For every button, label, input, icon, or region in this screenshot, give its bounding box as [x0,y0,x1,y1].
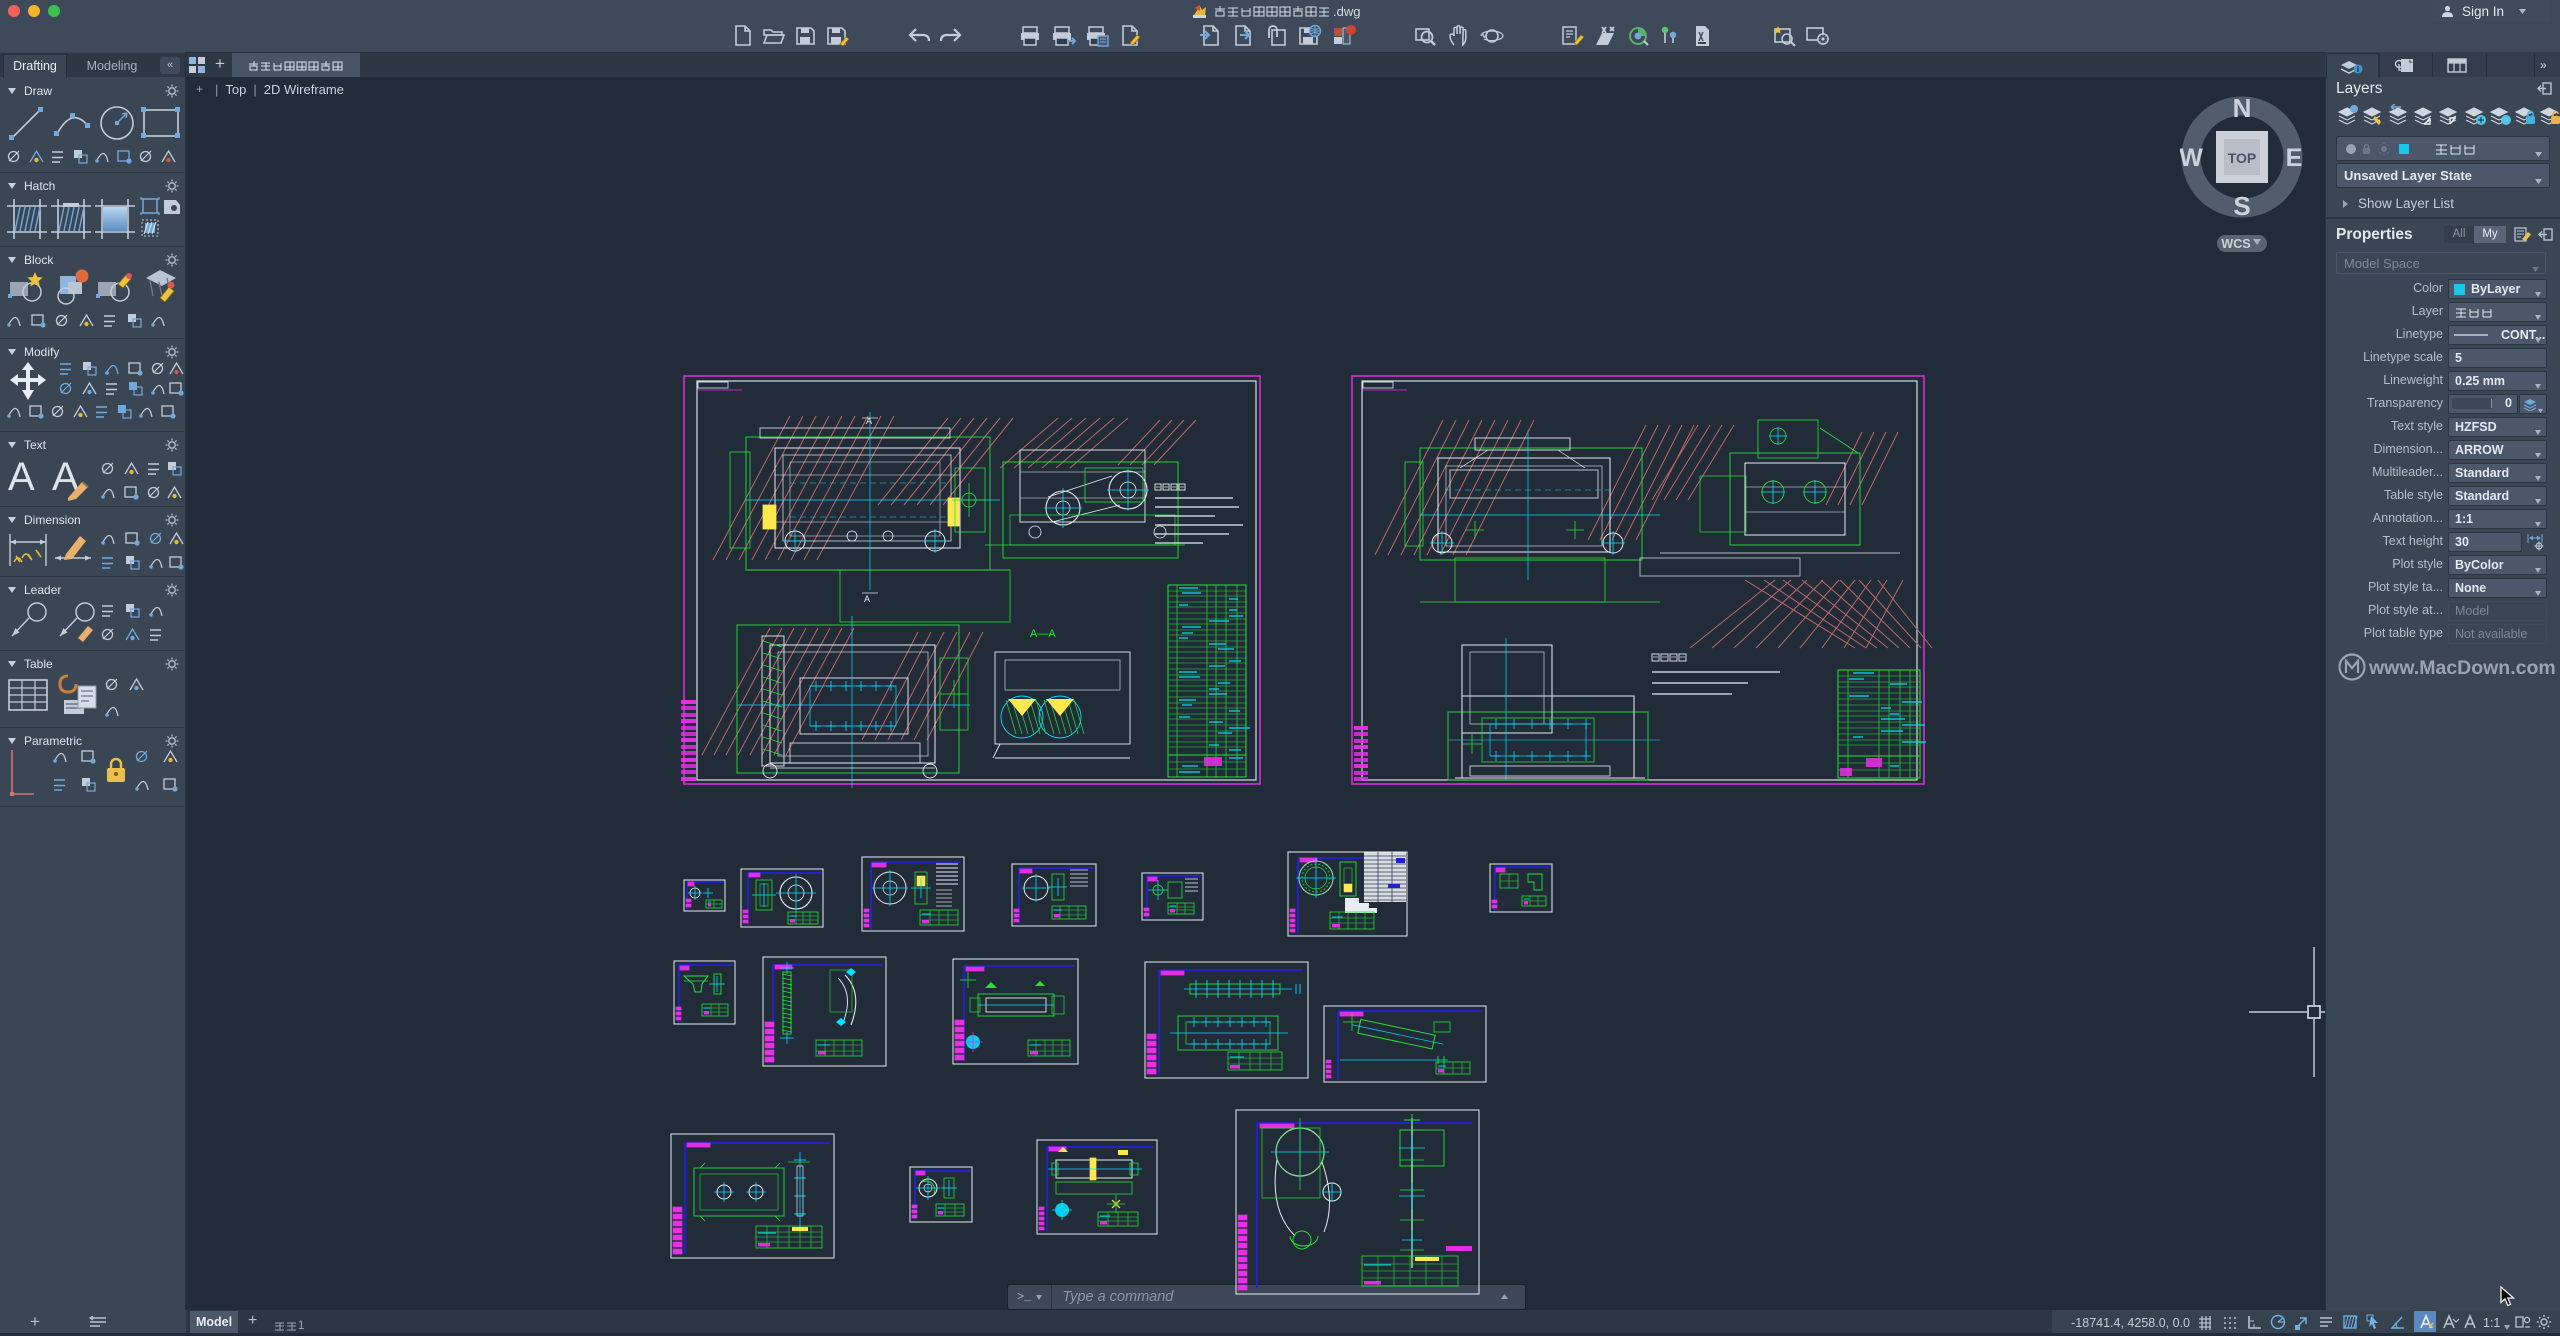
svg-text:Table: Table [24,657,53,671]
svg-text:Parametric: Parametric [24,734,82,748]
svg-text:i: i [2357,65,2359,74]
svg-text:Dimension: Dimension [24,513,81,527]
svg-text:Text: Text [24,438,47,452]
svg-text:A—A: A—A [1030,628,1056,640]
svg-text:A: A [866,416,872,426]
svg-text:A: A [864,594,870,604]
svg-text:Modify: Modify [24,345,59,359]
svg-text:Draw: Draw [24,84,52,98]
svg-text:www.MacDown.com: www.MacDown.com [2368,657,2556,679]
svg-text:Leader: Leader [24,583,61,597]
svg-text:Hatch: Hatch [24,179,55,193]
svg-text:Block: Block [24,253,54,267]
